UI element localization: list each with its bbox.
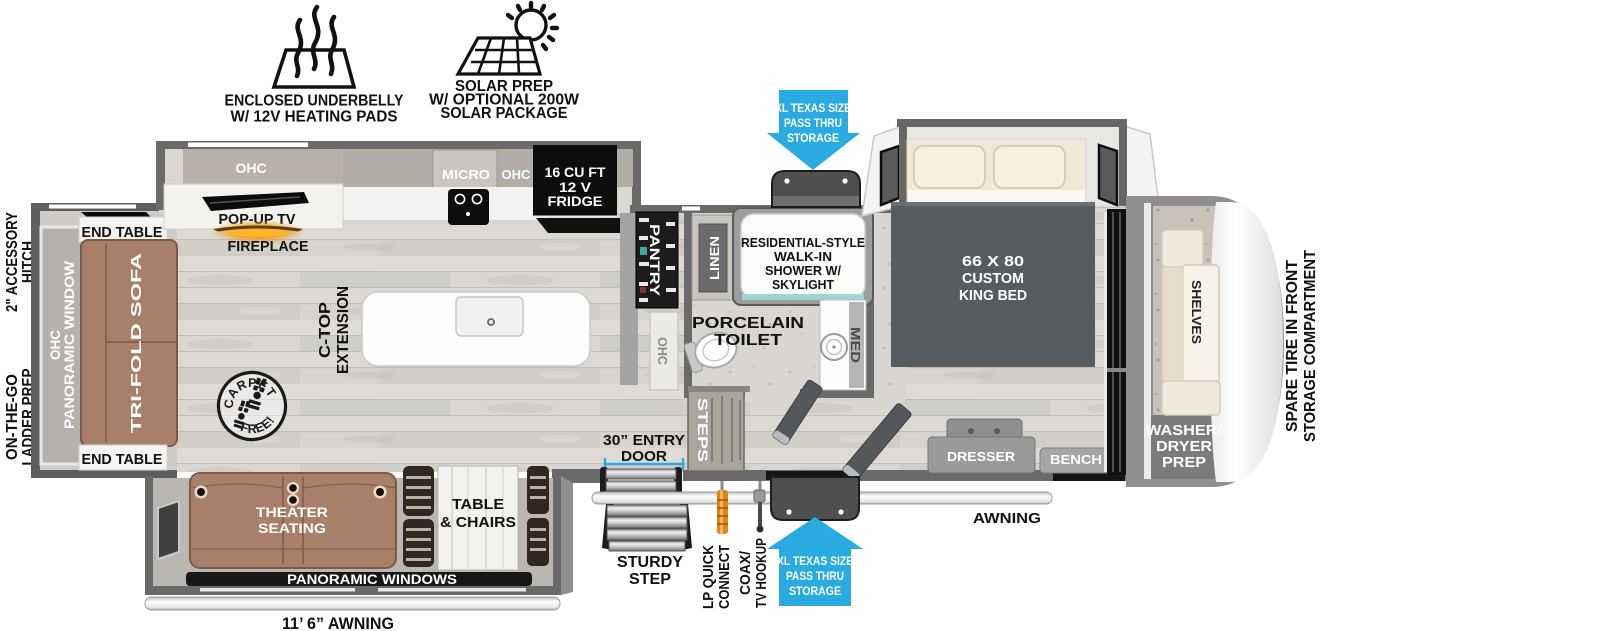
- svg-text:SEATING: SEATING: [258, 520, 326, 536]
- svg-text:& CHAIRS: & CHAIRS: [440, 514, 516, 531]
- svg-text:LP QUICK: LP QUICK: [701, 545, 717, 609]
- svg-text:PORCELAIN: PORCELAIN: [692, 315, 804, 332]
- svg-text:66 X 80: 66 X 80: [962, 254, 1024, 270]
- svg-text:PREP: PREP: [1162, 454, 1206, 471]
- svg-text:WALK-IN: WALK-IN: [774, 249, 832, 264]
- svg-text:MED: MED: [848, 327, 863, 363]
- svg-text:TV HOOKUP: TV HOOKUP: [754, 538, 770, 608]
- svg-text:MICRO: MICRO: [442, 167, 490, 182]
- svg-text:WASHER/: WASHER/: [1146, 422, 1223, 439]
- svg-text:STEPS: STEPS: [695, 398, 711, 462]
- svg-text:STEP: STEP: [629, 571, 671, 588]
- svg-text:SKYLIGHT: SKYLIGHT: [772, 277, 834, 292]
- svg-text:FIREPLACE: FIREPLACE: [228, 238, 309, 255]
- svg-text:FRIDGE: FRIDGE: [548, 193, 603, 209]
- svg-text:STORAGE: STORAGE: [787, 131, 839, 145]
- svg-text:ON-THE-GO: ON-THE-GO: [4, 374, 21, 460]
- svg-text:COAX/: COAX/: [738, 551, 754, 595]
- svg-text:30” ENTRY: 30” ENTRY: [603, 432, 685, 449]
- svg-text:TOILET: TOILET: [714, 332, 783, 349]
- svg-text:AWNING: AWNING: [973, 511, 1041, 527]
- svg-text:XL TEXAS SIZE: XL TEXAS SIZE: [775, 101, 851, 115]
- svg-text:XL TEXAS SIZE: XL TEXAS SIZE: [777, 554, 853, 568]
- svg-text:STORAGE: STORAGE: [789, 584, 841, 598]
- svg-text:KING BED: KING BED: [959, 288, 1027, 304]
- svg-text:PANTRY: PANTRY: [647, 224, 663, 297]
- svg-text:OHC: OHC: [655, 337, 669, 365]
- svg-text:STURDY: STURDY: [617, 554, 683, 571]
- svg-text:RESIDENTIAL-STYLE: RESIDENTIAL-STYLE: [741, 235, 865, 250]
- svg-text:OHC: OHC: [502, 167, 532, 182]
- svg-text:TABLE: TABLE: [452, 496, 504, 513]
- svg-text:2" ACCESSORY: 2" ACCESSORY: [4, 212, 21, 312]
- svg-text:PASS THRU: PASS THRU: [786, 569, 844, 583]
- svg-text:CUSTOM: CUSTOM: [962, 271, 1024, 287]
- svg-text:LINEN: LINEN: [708, 236, 722, 280]
- svg-text:TRI-FOLD SOFA: TRI-FOLD SOFA: [128, 253, 145, 433]
- svg-text:C-TOP: C-TOP: [317, 302, 334, 358]
- svg-text:DRYER: DRYER: [1156, 438, 1212, 455]
- svg-text:11’ 6” AWNING: 11’ 6” AWNING: [282, 615, 394, 631]
- svg-text:PANORAMIC WINDOW: PANORAMIC WINDOW: [62, 261, 77, 429]
- svg-text:OHC: OHC: [235, 160, 266, 176]
- svg-text:END TABLE: END TABLE: [82, 225, 163, 241]
- svg-text:SPARE TIRE IN FRONT: SPARE TIRE IN FRONT: [1284, 260, 1301, 432]
- svg-text:STORAGE COMPARTMENT: STORAGE COMPARTMENT: [1302, 250, 1319, 442]
- svg-text:END TABLE: END TABLE: [82, 452, 163, 468]
- svg-text:DRESSER: DRESSER: [947, 449, 1016, 464]
- svg-text:SOLAR PACKAGE: SOLAR PACKAGE: [441, 105, 568, 122]
- svg-text:PASS THRU: PASS THRU: [784, 116, 842, 130]
- svg-text:EXTENSION: EXTENSION: [335, 286, 352, 374]
- svg-text:16 CU FT: 16 CU FT: [545, 164, 606, 180]
- svg-text:ENCLOSED UNDERBELLY: ENCLOSED UNDERBELLY: [225, 93, 404, 110]
- svg-text:SHELVES: SHELVES: [1189, 280, 1204, 344]
- svg-text:W/ 12V HEATING PADS: W/ 12V HEATING PADS: [231, 109, 398, 126]
- svg-text:CONNECT: CONNECT: [717, 545, 733, 609]
- svg-text:SHOWER W/: SHOWER W/: [765, 263, 841, 278]
- svg-text:OHC: OHC: [48, 330, 63, 360]
- svg-text:DOOR: DOOR: [621, 448, 667, 465]
- svg-text:BENCH: BENCH: [1050, 452, 1102, 467]
- svg-text:PANORAMIC WINDOWS: PANORAMIC WINDOWS: [287, 572, 457, 587]
- svg-text:THEATER: THEATER: [256, 504, 328, 520]
